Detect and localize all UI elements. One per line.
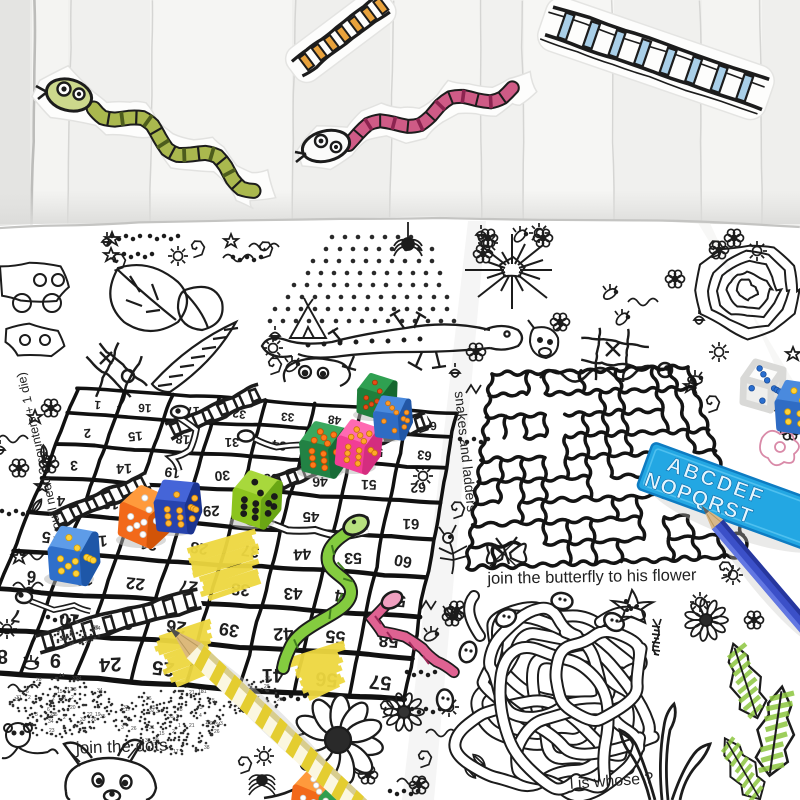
svg-text:14: 14	[59, 673, 65, 679]
svg-text:17: 17	[173, 749, 179, 755]
svg-text:26: 26	[214, 729, 220, 735]
svg-text:21: 21	[277, 697, 283, 703]
svg-text:29: 29	[202, 502, 220, 520]
svg-text:35: 35	[52, 712, 58, 718]
svg-text:57: 57	[368, 670, 392, 694]
svg-text:44: 44	[293, 544, 312, 562]
svg-text:1: 1	[178, 723, 181, 729]
svg-text:8: 8	[0, 645, 9, 668]
svg-text:38: 38	[204, 745, 210, 751]
svg-text:6: 6	[47, 707, 50, 713]
svg-text:4: 4	[199, 713, 202, 719]
svg-text:2: 2	[52, 696, 55, 702]
svg-text:34: 34	[97, 688, 103, 694]
svg-text:33: 33	[72, 676, 78, 682]
svg-text:34: 34	[215, 722, 221, 728]
svg-text:63: 63	[416, 447, 432, 464]
svg-text:2: 2	[172, 729, 175, 735]
svg-text:2: 2	[28, 695, 31, 701]
svg-text:28: 28	[36, 677, 42, 683]
svg-text:15: 15	[57, 689, 63, 695]
svg-text:22: 22	[125, 573, 146, 594]
svg-text:9: 9	[49, 649, 62, 672]
svg-text:36: 36	[60, 637, 66, 643]
svg-text:13: 13	[205, 720, 211, 726]
svg-text:24: 24	[98, 652, 122, 675]
svg-text:61: 61	[402, 515, 419, 532]
svg-text:21: 21	[189, 723, 195, 729]
svg-text:2: 2	[83, 426, 92, 442]
svg-text:33: 33	[80, 717, 86, 723]
svg-text:16: 16	[198, 689, 204, 695]
svg-text:26: 26	[131, 726, 137, 732]
svg-text:32: 32	[149, 708, 155, 714]
svg-text:36: 36	[146, 696, 152, 702]
svg-text:39: 39	[218, 618, 241, 641]
svg-text:15: 15	[128, 428, 144, 444]
svg-text:45: 45	[303, 508, 320, 525]
svg-text:31: 31	[149, 725, 155, 731]
svg-text:3: 3	[70, 458, 78, 474]
svg-text:20: 20	[70, 705, 76, 711]
svg-text:14: 14	[116, 461, 132, 478]
svg-text:51: 51	[361, 477, 377, 493]
svg-text:join the butterfly to his flow: join the butterfly to his flower	[486, 566, 697, 588]
svg-text:3: 3	[156, 709, 159, 715]
svg-text:60: 60	[393, 550, 414, 570]
svg-text:34: 34	[95, 626, 101, 632]
svg-text:43: 43	[283, 584, 302, 603]
svg-text:2: 2	[71, 695, 74, 701]
svg-text:19: 19	[95, 712, 101, 718]
svg-text:3: 3	[121, 725, 124, 731]
svg-text:10: 10	[69, 632, 75, 638]
svg-text:16: 16	[138, 401, 152, 415]
svg-text:2: 2	[63, 715, 66, 721]
svg-text:53: 53	[344, 549, 362, 566]
svg-text:33: 33	[280, 410, 295, 425]
svg-text:62: 62	[410, 480, 426, 497]
svg-text:25: 25	[265, 676, 271, 682]
svg-text:21: 21	[189, 690, 195, 696]
svg-text:25: 25	[85, 639, 91, 645]
svg-text:38: 38	[71, 687, 77, 693]
svg-text:34: 34	[48, 719, 54, 725]
svg-text:30: 30	[214, 467, 231, 484]
svg-text:6: 6	[26, 567, 37, 587]
